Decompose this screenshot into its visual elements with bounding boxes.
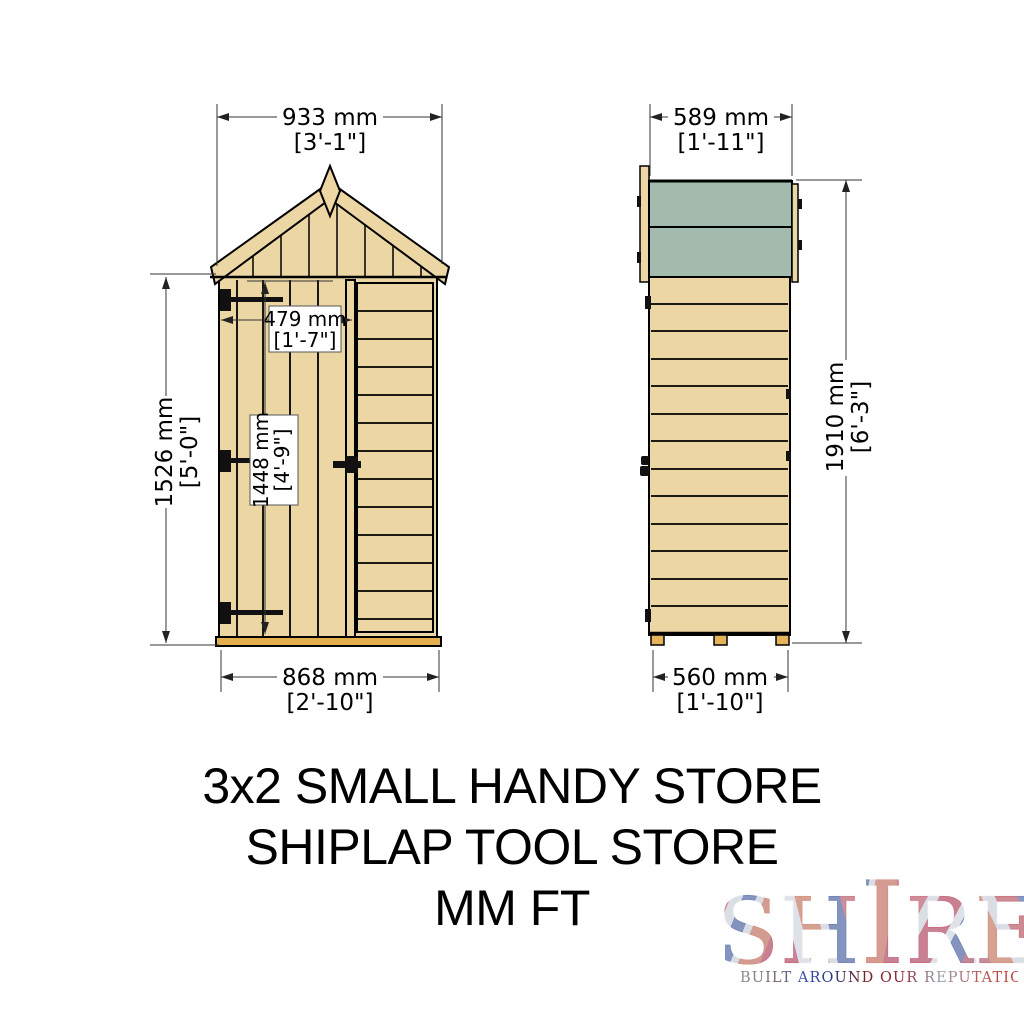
bargeboard-cleat [798, 240, 802, 250]
dim-text: 1910 mm [823, 362, 849, 473]
logo-letter: E [974, 886, 1024, 978]
logo-letter: I [860, 878, 905, 970]
dim-text: [6'-3"] [848, 381, 874, 453]
dim-text: 560 mm [672, 665, 768, 691]
dim-eaves-height: 1526 mm [5'-0"] [149, 274, 219, 645]
front-side-panel [357, 283, 433, 632]
front-elevation [210, 166, 449, 646]
dim-text: 589 mm [673, 105, 769, 131]
bearer-foot [714, 635, 727, 645]
logo-letter: S [717, 886, 780, 978]
dim-text: [1'-10"] [676, 690, 763, 716]
dim-text: [4'-9"] [270, 429, 294, 492]
side-rear-bargeboard [792, 184, 798, 282]
dim-text: [2'-10"] [286, 690, 373, 716]
side-elevation [637, 166, 802, 645]
logo-tagline: BUILT AROUND OUR REPUTATION [740, 970, 1018, 986]
shire-logo: S H I R E BUILT AROUND OUR REPUTATION [740, 878, 1018, 986]
dim-roof-depth: 589 mm [1'-11"] [650, 103, 792, 176]
dim-base-depth: 560 mm [1'-10"] [653, 650, 788, 716]
bargeboard-cleat [637, 196, 641, 207]
dim-text: 868 mm [282, 665, 378, 691]
diagram-page: 933 mm [3'-1"] 1526 mm [5'-0"] 479 mm [1… [0, 0, 1024, 1024]
dim-text: [3'-1"] [294, 130, 366, 156]
side-front-bargeboard [640, 166, 649, 282]
bargeboard-cleat [637, 252, 641, 263]
front-base-rail [216, 637, 441, 646]
dim-text: [1'-7"] [274, 328, 337, 352]
shire-logo-wordmark: S H I R E [740, 878, 1018, 978]
dim-text: 1526 mm [152, 397, 178, 508]
shed-elevation-drawing: 933 mm [3'-1"] 1526 mm [5'-0"] 479 mm [1… [0, 0, 1024, 745]
product-title-line1: 3x2 SMALL HANDY STORE [0, 756, 1024, 817]
dim-overall-height: 1910 mm [6'-3"] [792, 180, 876, 643]
side-roof-felt [649, 181, 792, 277]
dim-text: [5'-0"] [177, 416, 203, 488]
logo-letter: H [780, 886, 860, 978]
bargeboard-cleat [798, 199, 802, 209]
logo-letter: R [905, 886, 974, 978]
bearer-foot [776, 635, 789, 645]
bearer-foot [651, 635, 664, 645]
side-handle [640, 456, 649, 476]
dim-text: 933 mm [282, 105, 378, 131]
dim-text: [1'-11"] [677, 130, 764, 156]
dim-base-width: 868 mm [2'-10"] [221, 650, 439, 716]
